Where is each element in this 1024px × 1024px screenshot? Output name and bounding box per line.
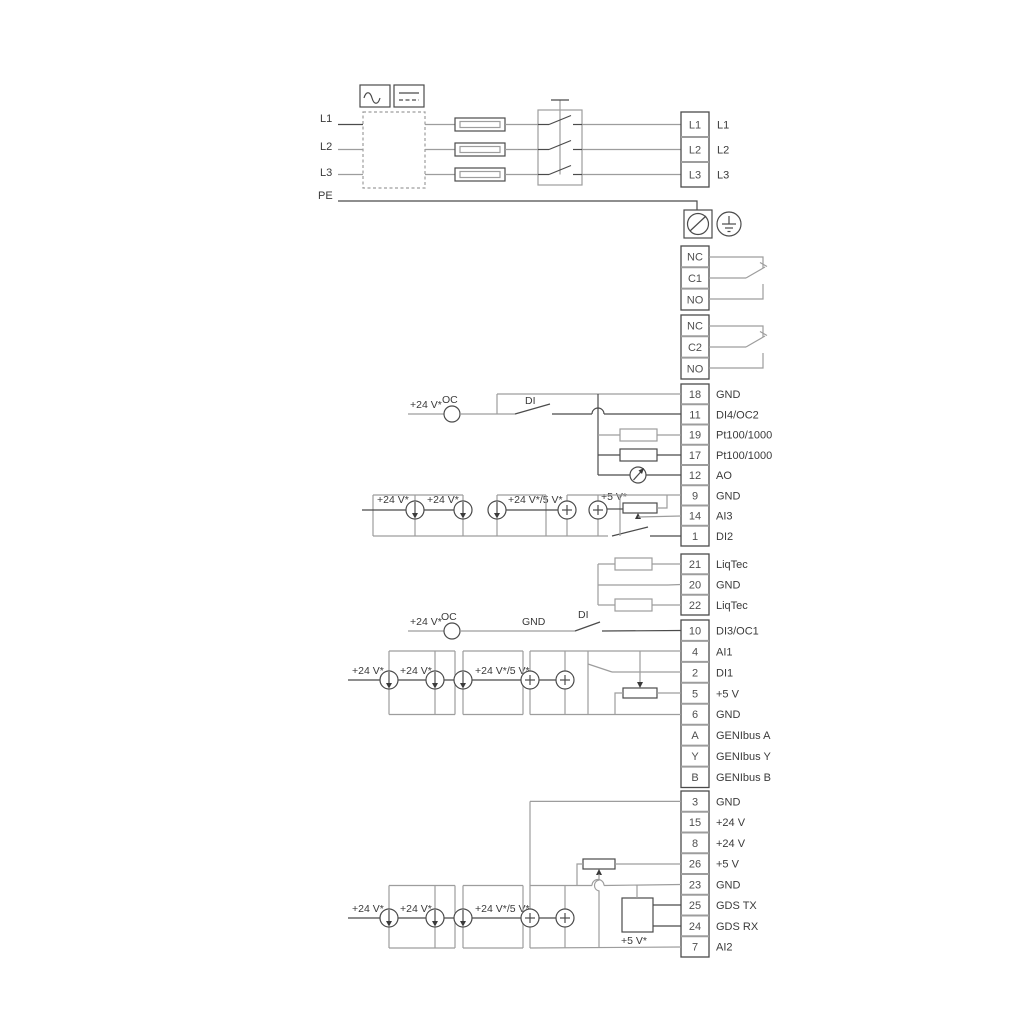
analog-output-meter-icon: [630, 467, 646, 483]
oc2-open-collector-icon: [444, 406, 460, 422]
terminal-18-label: GND: [716, 389, 741, 401]
oc2-di-label: DI: [525, 395, 536, 407]
pt100-sensor1-icon: [620, 429, 657, 441]
terminal-a-num: A: [691, 730, 699, 742]
io-block-a: 18 11 19 17 12 9 14 1 GND DI4/OC2 Pt100/…: [681, 384, 772, 546]
terminal-18-num: 18: [689, 389, 701, 401]
pe-screw-terminal-icon: [684, 210, 712, 238]
fuse-l2-icon: [455, 143, 505, 156]
voltage-source-icon: [556, 909, 574, 927]
voltage-source-icon: [521, 671, 539, 689]
terminal-7-label: AI2: [716, 942, 733, 954]
current-source-icon: [406, 501, 424, 519]
ai3-potentiometer-icon: [623, 503, 657, 513]
terminal-5-label: +5 V: [716, 688, 740, 700]
terminal-4-label: AI1: [716, 646, 733, 658]
oc1-gnd-label: GND: [522, 616, 546, 628]
terminal-10-num: 10: [689, 626, 701, 638]
terminal-22-label: LiqTec: [716, 600, 748, 612]
terminal-9-label: GND: [716, 490, 741, 502]
terminal-19-num: 19: [689, 430, 701, 442]
ai1-wiper-arrow-icon: [637, 682, 643, 688]
oc1-di3-circuit: +24 V* OC GND DI: [408, 609, 681, 639]
current-source-icon: [454, 909, 472, 927]
ai3-sensor-row: +24 V* +24 V* +24 V*/5 V* +5 V*: [362, 491, 681, 536]
terminal-14-num: 14: [689, 511, 701, 523]
terminal-3-label: GND: [716, 796, 741, 808]
ai2-s3-label: +24 V*/5 V*: [475, 903, 530, 915]
relay1-nc-cell: NC: [687, 252, 703, 264]
terminal-26-num: 26: [689, 859, 701, 871]
io-block-c: 10 4 2 5 6 A Y B DI3/OC1 AI1 DI1 +5 V GN…: [681, 620, 771, 788]
terminal-25-num: 25: [689, 900, 701, 912]
terminal-19-label: Pt100/1000: [716, 430, 772, 442]
current-source-icon: [426, 909, 444, 927]
relay1-contact-icon: [709, 257, 767, 299]
terminal-22-num: 22: [689, 600, 701, 612]
ai3-s4-label: +5 V*: [601, 491, 627, 503]
terminal-20-wire: [668, 585, 681, 586]
current-source-icon: [426, 671, 444, 689]
liqtec-sensors-icon: [598, 558, 681, 611]
ai3-s3-label: +24 V*/5 V*: [508, 494, 563, 506]
terminal-y-label: GENIbus Y: [716, 751, 771, 763]
current-source-icon: [454, 501, 472, 519]
wiring-diagram-canvas: L1 L2 L3 PE: [0, 0, 1024, 1024]
terminal-11-num: 11: [689, 409, 700, 421]
terminal-6-num: 6: [692, 709, 698, 721]
ai3-s1-label: +24 V*: [377, 494, 409, 506]
terminal-7-num: 7: [692, 942, 698, 954]
terminal-25-label: GDS TX: [716, 900, 757, 912]
mains-out-l1-label: L1: [717, 120, 729, 132]
terminal-1-label: DI2: [716, 531, 733, 543]
mains-out-l3-label: L3: [717, 170, 729, 182]
terminal-12-num: 12: [689, 470, 701, 482]
liqtec-sensor1-icon: [615, 558, 652, 570]
terminal-20-num: 20: [689, 580, 701, 592]
terminal-y-num: Y: [691, 751, 699, 763]
terminal-21-label: LiqTec: [716, 559, 748, 571]
terminal-20-label: GND: [716, 580, 741, 592]
io-block-d: 3 15 8 26 23 25 24 7 GND +24 V +24 V +5 …: [681, 791, 759, 957]
terminal-11-label: DI4/OC2: [716, 409, 759, 421]
current-source-icon: [380, 909, 398, 927]
ai2-gds-sensor-row: +24 V* +24 V* +24 V*/5 V* +5 V*: [348, 801, 681, 948]
ai1-potentiometer-icon: [623, 688, 657, 698]
mains-in-l1-label: L1: [320, 113, 332, 125]
ai3-s2-label: +24 V*: [427, 494, 459, 506]
terminal-23-label: GND: [716, 879, 741, 891]
ai2-s1-label: +24 V*: [352, 903, 384, 915]
oc1-oc-label: OC: [441, 611, 457, 623]
ai3-wiper-arrow-icon: [635, 513, 641, 519]
voltage-source-icon: [521, 909, 539, 927]
terminal-24-num: 24: [689, 921, 701, 933]
terminal-7-wire: [530, 947, 681, 948]
ai1-sensor-row: +24 V* +24 V* +24 V*/5 V*: [348, 651, 681, 715]
liqtec-sensor2-icon: [615, 599, 652, 611]
terminal-15-num: 15: [689, 817, 701, 829]
relay2-nc-cell: NC: [687, 321, 703, 333]
gds-sensor-box: [622, 898, 653, 932]
relay2-no-cell: NO: [687, 363, 704, 375]
ai2-s4-label: +5 V*: [621, 935, 647, 947]
terminal-23-wire: [604, 885, 681, 886]
terminal-9-num: 9: [692, 490, 698, 502]
oc2-supply-label: +24 V*: [410, 399, 442, 411]
ac-symbol-icon: [360, 85, 390, 107]
relay2-contact-icon: [709, 326, 767, 368]
oc1-open-collector-icon: [444, 623, 460, 639]
terminal-6-label: GND: [716, 709, 741, 721]
earth-ground-icon: [717, 212, 741, 236]
dc-symbol-icon: [394, 85, 424, 107]
terminal-15-label: +24 V: [716, 817, 746, 829]
di2-switch-icon: [612, 527, 648, 536]
oc1-di-label: DI: [578, 609, 589, 621]
ai1-s1-label: +24 V*: [352, 665, 384, 677]
oc2-oc-label: OC: [442, 394, 458, 406]
liqtec-block: 21 20 22 LiqTec GND LiqTec: [598, 554, 748, 615]
terminal-23-num: 23: [689, 879, 701, 891]
current-source-icon: [380, 671, 398, 689]
mains-out-l2-label: L2: [717, 145, 729, 157]
main-switch-icon: [538, 100, 582, 185]
mains-input-section: L1 L2 L3 PE: [318, 85, 741, 238]
current-source-icon: [454, 671, 472, 689]
terminal-4-num: 4: [692, 646, 698, 658]
terminal-1-num: 1: [692, 531, 698, 543]
relay1-c-cell: C1: [688, 273, 702, 285]
terminal-b-num: B: [691, 772, 698, 784]
mains-in-l3-label: L3: [320, 167, 332, 179]
relay2-c-cell: C2: [688, 342, 702, 354]
terminal-8-label: +24 V: [716, 838, 746, 850]
relay1-no-cell: NO: [687, 294, 704, 306]
mains-out-l3-cell: L3: [689, 170, 701, 182]
ai1-s3-label: +24 V*/5 V*: [475, 665, 530, 677]
voltage-source-icon: [558, 501, 576, 519]
mains-out-l2-cell: L2: [689, 145, 701, 157]
pe-wire: [338, 201, 697, 210]
terminal-2-num: 2: [692, 667, 698, 679]
voltage-source-icon: [589, 501, 607, 519]
wiring-diagram: L1 L2 L3 PE: [0, 0, 1024, 1024]
di3-switch-icon: [575, 622, 600, 631]
terminal-14-wire: [638, 516, 681, 517]
terminal-3-num: 3: [692, 796, 698, 808]
relay1-block: NC C1 NO: [681, 246, 767, 310]
relay2-block: NC C2 NO: [681, 315, 767, 379]
mains-in-l2-label: L2: [320, 141, 332, 153]
current-source-icon: [488, 501, 506, 519]
ai2-potentiometer-icon: [583, 859, 615, 869]
fuse-l3-icon: [455, 168, 505, 181]
pt100-sensor2-icon: [620, 449, 657, 461]
oc2-di4-circuit: +24 V* OC DI: [408, 394, 681, 483]
terminal-5-num: 5: [692, 688, 698, 700]
mains-out-l1-cell: L1: [689, 120, 701, 132]
terminal-17-num: 17: [689, 450, 701, 462]
drive-dashed-box: [363, 112, 425, 188]
terminal-b-label: GENIbus B: [716, 772, 771, 784]
mains-terminal-block: L1 L2 L3: [681, 112, 709, 187]
terminal-10-wire: [602, 631, 681, 632]
terminal-14-label: AI3: [716, 511, 733, 523]
terminal-8-num: 8: [692, 838, 698, 850]
di1-switch-icon: [588, 664, 612, 672]
terminal-17-label: Pt100/1000: [716, 450, 772, 462]
fuse-l1-icon: [455, 118, 505, 131]
terminal-24-label: GDS RX: [716, 921, 759, 933]
voltage-source-icon: [556, 671, 574, 689]
terminal-2-label: DI1: [716, 667, 733, 679]
terminal-10-label: DI3/OC1: [716, 626, 759, 638]
terminal-12-label: AO: [716, 470, 732, 482]
terminal-26-label: +5 V: [716, 859, 740, 871]
oc1-supply-label: +24 V*: [410, 616, 442, 628]
terminal-21-num: 21: [689, 559, 701, 571]
terminal-a-label: GENIbus A: [716, 730, 771, 742]
mains-in-pe-label: PE: [318, 190, 333, 202]
